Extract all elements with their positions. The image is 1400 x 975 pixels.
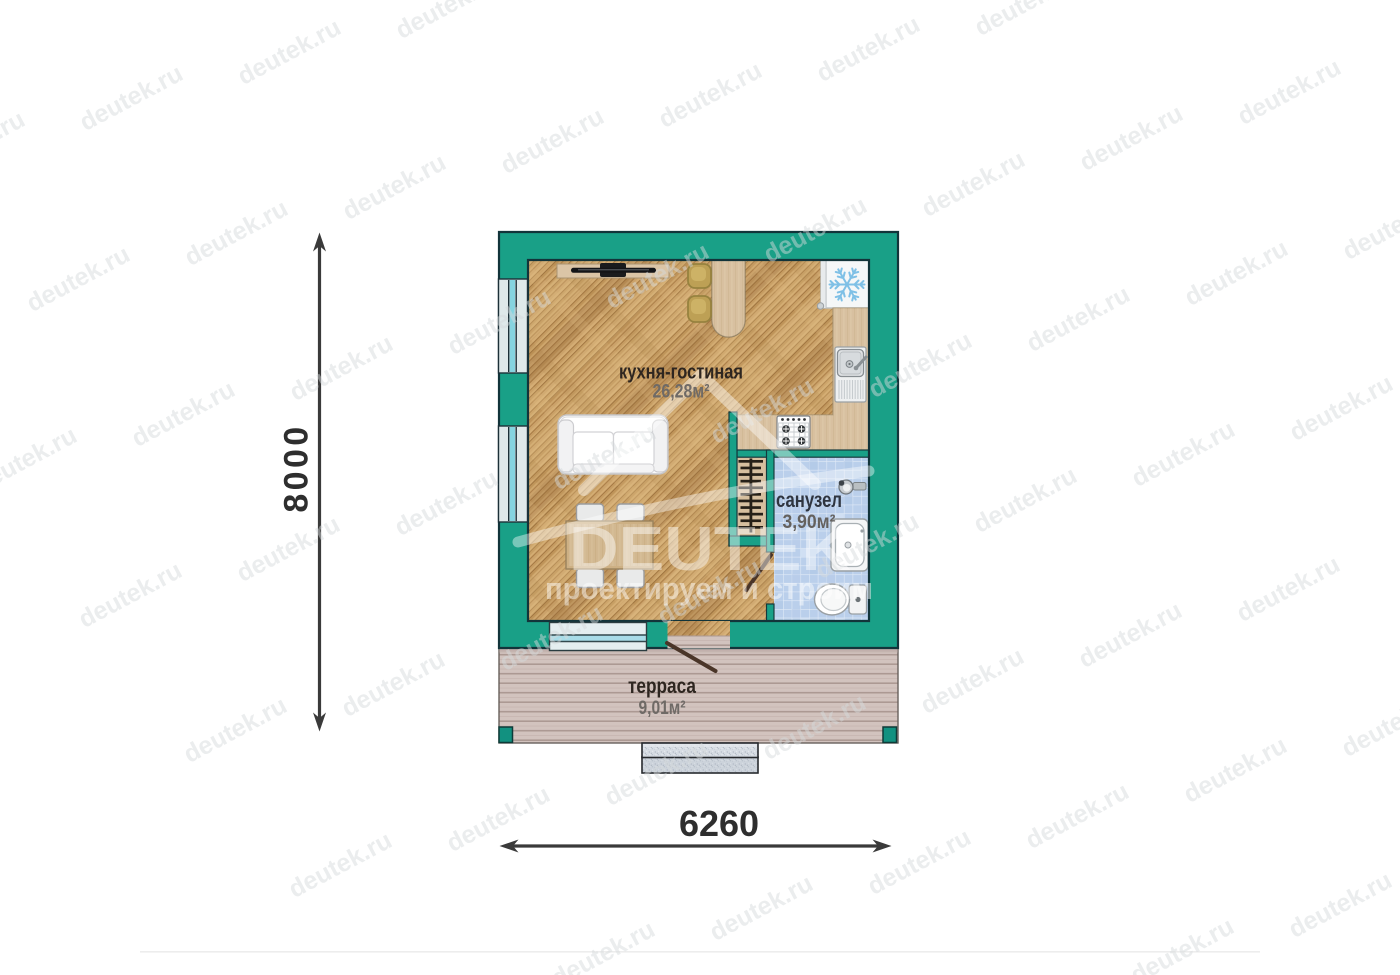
svg-text:6260: 6260 [679,803,759,844]
svg-text:3,90м²: 3,90м² [783,511,836,533]
svg-text:санузел: санузел [776,489,842,512]
svg-text:терраса: терраса [628,675,696,698]
svg-text:26,28м²: 26,28м² [653,381,710,403]
svg-text:8000: 8000 [278,423,316,512]
svg-text:проектируем и строим: проектируем и строим [545,571,873,606]
svg-text:9,01м²: 9,01м² [639,697,686,719]
